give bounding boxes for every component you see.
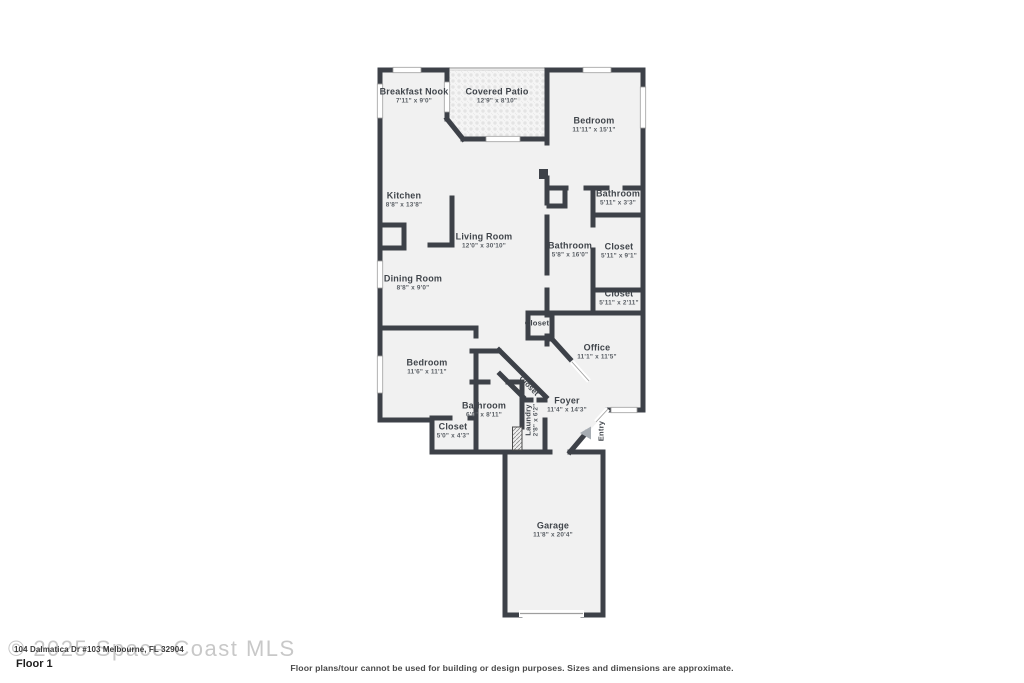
floorplan-page: Breakfast Nook 7'11" x 9'0" Covered Pati…: [0, 0, 1024, 683]
door-jamb-block: [539, 169, 548, 179]
disclaimer-text: Floor plans/tour cannot be used for buil…: [0, 663, 1024, 673]
floor-fill: [377, 70, 646, 615]
hatched-fixture: [513, 427, 523, 450]
garage-door: [519, 610, 584, 617]
address-overlay-text: 104 Dalmatica Dr #103 Melbourne, FL 3290…: [14, 645, 184, 654]
floorplan-drawing: [0, 0, 1024, 683]
covered-patio-area: [449, 70, 545, 137]
